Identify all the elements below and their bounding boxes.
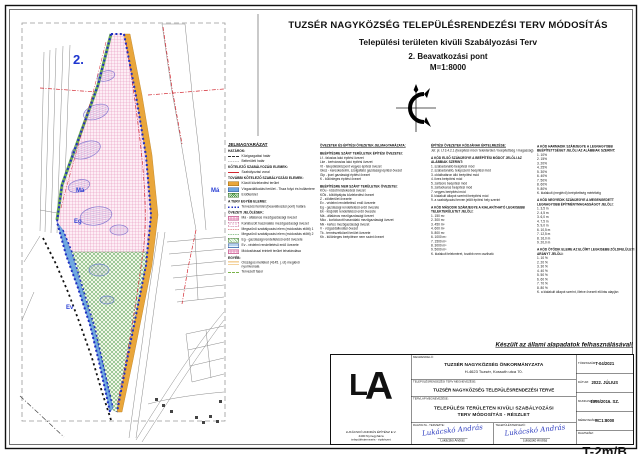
drawn-by-label: RAJZOLTA - TERVEZTE: [413,424,445,427]
legend-swatch [228,272,239,273]
legend-swatch [228,238,239,243]
legend-swatch [228,156,239,157]
legend-item: Eg - gazdasági rendeltetésű erdő övezete [228,238,318,243]
stamp-right-column: TÖRZSSZÁM: T-04/2021 DÁTUM: 2022. JÚLIUS… [577,355,634,444]
plan-name-label: TELEPÜLÉSRENDEZÉSI TERV MEGNEVEZÉSE: [413,381,476,384]
meta-row: TÖRZSSZÁM: T-04/2021 [577,361,634,374]
legend-item: KÖTELEZŐ SZABÁLYOZÁSI ELEMEK: [228,166,318,170]
legend-swatch [228,234,239,235]
zone-code-notes-col3: A KÓD HARMADIK SZÁMJEGYE A LEGNAGYOBB BE… [537,144,635,295]
note-line: A KÓD ELSŐ SZÁMJEGYE A BEÉPÍTÉSI MÓDOT J… [431,156,538,164]
legend-item: TOVÁBBI KÖTELEZŐ SZABÁLYOZÁSI ELEMEK: [228,177,318,181]
logo-letter-a: A [365,364,393,408]
sheet-name-label: TERVLAP MEGNEVEZÉSE: [413,398,448,401]
designer-company-lines: LUKÁCSKÓ ANDRÁS ÉPÍTÉSZ E.V.4400 Nyíregy… [331,430,411,442]
note-line: ÉPÍTÉSI ÖVEZETEK KÓDJÁNAK ÉRTELMEZÉSE: [431,144,538,148]
title-block: LA LUKÁCSKÓ ANDRÁS ÉPÍTÉSZ E.V.4400 Nyír… [330,354,634,445]
designer-label: TELEPÜLÉSTERVEZŐ: [496,424,526,427]
note-line: A KÓD ÖTÖDIK ELEME AZ ELŐÍRT LEGKISEBB Z… [537,248,635,256]
signature-row: RAJZOLTA - TERVEZTE: Lukácskó András Luk… [412,423,577,444]
note-line [320,149,427,151]
legend-swatch [228,161,239,162]
legend-item-label: Módosítással érintett terület lehatárolá… [242,249,301,253]
stamp-middle-column: MEGRENDELŐ: TUZSÉR NAGYKÖZSÉG ÖNKORMÁNYZ… [412,355,577,444]
meta-label: DÁTUM: [578,381,589,384]
zone-code-notes-col1: ÖVEZETEK ÉS ÉPÍTÉSI ÖVEZETEK JELMAGYARÁZ… [320,144,427,240]
zone-label-ev: Ev [66,305,74,311]
plan-name-row: TELEPÜLÉSRENDEZÉSI TERV MEGNEVEZÉSE: TUZ… [412,380,577,397]
zone-label-eg: Eg [74,219,82,225]
meta-label: MUNKASZÁM: [578,400,597,403]
legend-swatch [228,244,239,249]
legend-item-label: Belterületi határ [242,159,265,163]
note-line: K. a kialakult állapot szerint, illetve … [537,290,635,294]
legend-item-label: Országos mellékút (4145. j. út) meglévő … [242,261,319,269]
page-title: TUZSÉR NAGYKÖZSÉG TELEPÜLÉSRENDEZÉSI TER… [262,20,634,31]
legend-item: ÖVEZETI JELÖLÉSEK: [228,211,318,215]
legend-item: Tervezési terület (beavatkozási pont) ha… [228,205,318,209]
legend-item-label: TOVÁBBI KÖTELEZŐ SZABÁLYOZÁSI ELEMEK: [228,177,304,181]
zone-label-ma: Má [76,188,85,194]
note-line: K. kialakult telekméret, tovább nem oszt… [431,252,538,256]
legend-swatch [228,229,239,230]
legend-item: Módosítással érintett terület lehatárolá… [228,249,318,254]
legend-item-label: Erdőterület [242,193,258,197]
legend-item: EGYÉB: [228,256,318,260]
legend-swatch [228,222,239,227]
legend-item: Tervezett fasor [228,270,318,274]
note-line [537,245,635,247]
dash-dot-line [20,396,64,437]
legend-title: JELMAGYARÁZAT [228,142,318,147]
base-data-note: Készült az állami alapadatok felhasználá… [433,341,633,348]
legend-swatch [228,206,239,208]
client-label: MEGRENDELŐ: [413,356,434,359]
meta-label: TÖRZSSZÁM: [578,362,596,365]
legend-item: A TERV EGYÉB ELEMEI: [228,200,318,204]
legend-item-label: Ev - védelmi rendeltetésű erdő övezete [242,244,299,248]
legend-item: Vízgazdálkodási terület - Tisza folyó és… [228,187,318,192]
note-line [431,153,538,155]
legend-item: Közúti közlekedési terület [228,182,318,187]
legend-item-label: KÖTELEZŐ SZABÁLYOZÁSI ELEMEK: [228,166,288,170]
drawing-number-cell: RAJZSZÁM: T-2m/B [577,431,634,454]
page-subtitle: Települési területen kivüli Szabályozási… [262,37,634,47]
legend-item-label: EGYÉB: [228,256,241,260]
zone-label-ma-2: Má [211,188,220,194]
drawing-number: T-2m/B [577,444,634,454]
plan-name: TUZSÉR NAGYKÖZSÉG TELEPÜLÉSRENDEZÉSI TER… [412,388,577,393]
zone-code-notes-col2: ÉPÍTÉSI ÖVEZETEK KÓDJÁNAK ÉRTELMEZÉSE:Je… [431,144,538,257]
legend-item-label: Má - általános mezőgazdasági övezet [242,216,297,220]
intervention-point-title: 2. Beavatkozási pont [262,52,634,61]
note-line [431,203,538,205]
legend-item: Má - általános mezőgazdasági övezet [228,216,318,221]
sheet-name-line1: TELEPÜLÉSI TERÜLETEN KIVÜLI SZABÁLYOZÁSI [412,406,577,412]
legend-item: Korlátozott használatú mezőgazdasági öve… [228,222,318,227]
designer-name: Lukácskó András [520,439,550,443]
north-arrow-icon [396,84,436,132]
legend-item-label: Közúti közlekedési terület [242,182,279,186]
client-name: TUZSÉR NAGYKÖZSÉG ÖNKORMÁNYZATA [412,362,577,368]
note-line: Kb - különleges beépítésre nem szánt öve… [320,236,427,240]
logo-letter-l: L [349,368,365,403]
legend-item: Belterületi határ [228,159,318,163]
drawn-by-name: Lukácskó András [437,439,467,443]
legend-swatch [228,187,239,192]
legend-item-label: Eg - gazdasági rendeltetésű erdő övezete [242,238,303,242]
legend-item: Megszűnő szabályozási elem (módosítás el… [228,228,318,232]
sheet-name-line2: TERV MÓDOSÍTÁS - RÉSZLET [412,412,577,418]
drawing-number-label: RAJZSZÁM: [578,432,594,435]
client-row: MEGRENDELŐ: TUZSÉR NAGYKÖZSÉG ÖNKORMÁNYZ… [412,355,577,380]
scale-label: M=1:8000 [262,63,634,72]
legend-item-label: Megszűnő szabályozási elem (módosítás el… [242,228,314,232]
legend-item-label: HATÁROK: [228,150,245,154]
legend-item-label: ÖVEZETI JELÖLÉSEK: [228,211,264,215]
sheet-title-block: TUZSÉR NAGYKÖZSÉG TELEPÜLÉSRENDEZÉSI TER… [262,20,634,72]
legend-item-label: Tervezési terület (beavatkozási pont) ha… [242,205,306,209]
legend-items: HATÁROK: Közigazgatási határ Belterületi… [228,150,318,274]
legend-swatch [228,216,239,221]
legend-swatch [228,172,239,173]
intervention-point-label: 2. [73,52,84,67]
designer-cell: TELEPÜLÉSTERVEZŐ: Lukácskó András Lukács… [494,423,576,444]
meta-row: DÁTUM: 2022. JÚLIUS [577,380,634,393]
designer-logo-cell: LA LUKÁCSKÓ ANDRÁS ÉPÍTÉSZ E.V.4400 Nyír… [331,355,412,444]
legend-item-label: Tervezett fasor [242,270,264,274]
legend-item-label: Közigazgatási határ [242,154,271,158]
legend: JELMAGYARÁZAT HATÁROK: Közigazgatási hat… [228,142,318,275]
note-line: A KÓD HARMADIK SZÁMJEGYE A LEGNAGYOBB BE… [537,145,635,153]
legend-item: Közigazgatási határ [228,154,318,158]
note-line [537,196,635,198]
sheet-name-row: TERVLAP MEGNEVEZÉSE: TELEPÜLÉSI TERÜLETE… [412,397,577,423]
legend-item: Ev - védelmi rendeltetésű erdő övezete [228,244,318,249]
legend-item-label: Szabályozási vonal [242,170,270,174]
legend-item-label: Vízgazdálkodási terület - Tisza folyó és… [242,187,315,191]
legend-item-label: A TERV EGYÉB ELEMEI: [228,200,267,204]
note-line: Jel: pl. Lf 3.4.2.1 (beépítési mód / tel… [431,149,538,153]
note-line: ÖVEZETEK ÉS ÉPÍTÉSI ÖVEZETEK JELMAGYARÁZ… [320,144,427,148]
legend-item-label: Korlátozott használatú mezőgazdasági öve… [242,222,309,226]
legend-swatch [228,262,239,266]
legend-item: Szabályozási vonal [228,170,318,174]
note-line: A KÓD NEGYEDIK SZÁMJEGYE A MEGENGEDETT L… [537,199,635,207]
stamp-meta-rows: TÖRZSSZÁM: T-04/2021 DÁTUM: 2022. JÚLIUS… [577,355,634,431]
legend-swatch [228,182,239,187]
legend-item: Megszűnő szabályozási elem (módosítás el… [228,233,318,237]
note-line [320,182,427,184]
meta-label: MÉRETARÁNY: [578,419,598,422]
client-address: H-4623 Tuzsér, Kossuth utca 70. [412,370,577,375]
meta-row: MUNKASZÁM: 1395/2016. SZ. [577,399,634,412]
legend-item: Országos mellékút (4145. j. út) meglévő … [228,261,318,269]
legend-swatch [228,193,239,198]
legend-item: Erdőterület [228,193,318,198]
legend-swatch [228,249,239,254]
legend-item: HATÁROK: [228,150,318,154]
la-logo: LA [331,364,411,399]
drawn-by-cell: RAJZOLTA - TERVEZTE: Lukácskó András Luk… [412,423,495,444]
meta-row: MÉRETARÁNY: M=1:8000 [577,418,634,431]
legend-item-label: Megszűnő szabályozási elem (módosítás el… [242,233,314,237]
company-line: településtervezés - építészet [331,438,411,442]
building-marks [155,398,222,424]
note-line: A KÓD MÁSODIK SZÁMJEGYE A KIALAKÍTHATÓ L… [431,206,538,214]
plan-sheet: 2. Má Má Eg Ev TUZSÉR NAGYKÖZSÉG TELEPÜL… [0,0,642,454]
